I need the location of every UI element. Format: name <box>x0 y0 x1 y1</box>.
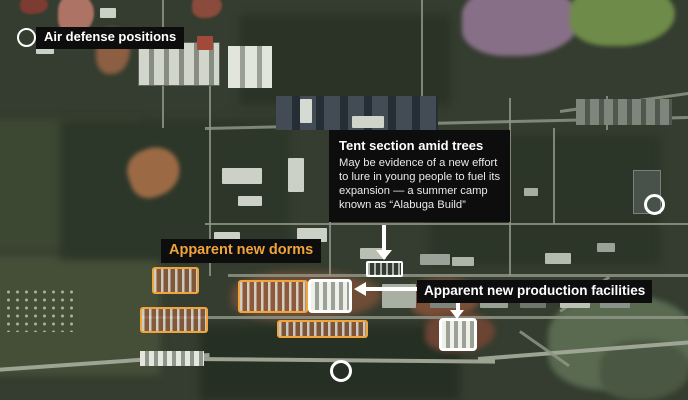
arrow-left-icon <box>364 287 421 291</box>
building <box>288 158 304 192</box>
dorm-outline <box>140 307 208 333</box>
building <box>352 116 384 128</box>
terrain-field-pink <box>462 0 580 56</box>
dorm-outline <box>238 280 308 313</box>
tent-info-title: Tent section amid trees <box>339 138 500 153</box>
building <box>100 8 116 18</box>
building <box>300 99 312 123</box>
arrow-down-icon <box>450 310 464 319</box>
building <box>452 257 474 266</box>
road <box>140 316 688 319</box>
village-dots <box>4 288 74 332</box>
tent-info-body: May be evidence of a new effort to lure … <box>339 157 500 213</box>
dirt-patch <box>192 0 222 18</box>
building <box>597 243 615 252</box>
dorms-label: Apparent new dorms <box>161 239 321 263</box>
air-defense-label: Air defense positions <box>36 27 184 49</box>
building-cluster <box>228 46 272 88</box>
road <box>205 223 688 225</box>
arrow-left-icon <box>354 282 366 296</box>
dorm-outline <box>277 320 368 338</box>
arrow-down-icon <box>382 225 386 252</box>
production-label: Apparent new production facilities <box>417 280 652 303</box>
circle-marker <box>330 360 352 382</box>
building-cluster <box>576 99 672 125</box>
building <box>222 168 262 184</box>
terrain-field-green <box>570 0 675 46</box>
building <box>524 188 538 196</box>
circle-marker <box>644 194 665 215</box>
air-defense-circle-marker <box>17 28 36 47</box>
facility-west-outline <box>308 279 352 313</box>
building <box>197 36 213 50</box>
tent-section-outline <box>366 261 403 277</box>
arrow-down-icon <box>376 250 392 260</box>
road <box>228 274 688 277</box>
dorm-outline <box>152 267 199 294</box>
truck-stop <box>140 351 204 366</box>
facility-east-outline <box>439 318 477 351</box>
building <box>420 254 450 265</box>
building <box>238 196 262 206</box>
tent-info-box: Tent section amid trees May be evidence … <box>329 130 510 222</box>
satellite-map: Air defense positions Apparent new dorms… <box>0 0 688 400</box>
building <box>545 253 571 264</box>
dirt-patch <box>20 0 48 14</box>
road <box>553 128 555 224</box>
